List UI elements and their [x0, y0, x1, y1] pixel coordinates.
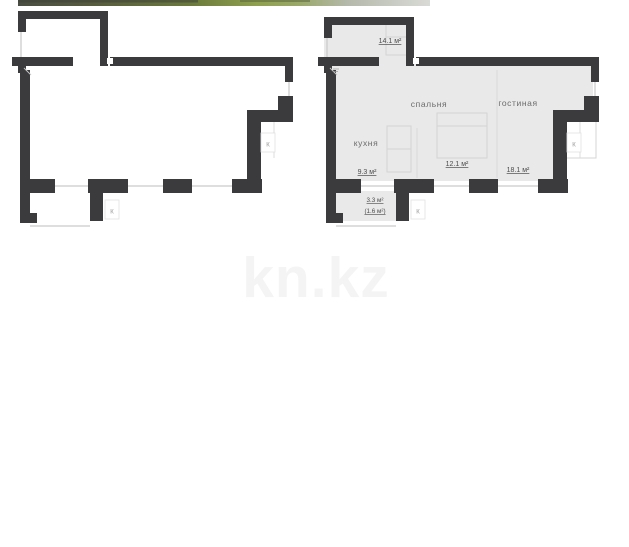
kitchen-area-label: 9.3 м²: [358, 169, 377, 176]
floor-plan-left: К К: [12, 11, 293, 226]
floor-plan-right: 14.1 м² кухня 9.3 м² спальня 12.1 м² гос…: [318, 17, 599, 226]
left-plan-k-marker-right: К: [261, 133, 275, 152]
livingroom-area-label: 18.1 м²: [507, 167, 530, 174]
bathroom-area-label: 3.3 м²: [367, 197, 384, 204]
livingroom-name-label: гостиная: [498, 98, 537, 108]
floor-plan-image: kn.kz: [0, 0, 629, 547]
right-plan-k-marker-right: К: [567, 133, 581, 152]
left-plan-k-marker-bottom: К: [105, 200, 119, 219]
k-marker-label: К: [572, 143, 576, 149]
bedroom-area-label: 12.1 м²: [446, 161, 469, 168]
k-marker-label: К: [266, 143, 270, 149]
bathroom-area-secondary-label: (1.6 м²): [364, 208, 385, 215]
right-plan-k-marker-bottom: К: [411, 200, 425, 219]
floor-plan-svg: kn.kz: [0, 0, 629, 547]
left-plan-walls: [12, 11, 293, 223]
k-marker-label: К: [416, 210, 420, 216]
photo-strip: [18, 0, 430, 6]
right-plan-wall-notch: [413, 58, 419, 64]
k-marker-label: К: [110, 210, 114, 216]
kitchen-name-label: кухня: [354, 138, 379, 148]
kn-kz-watermark: kn.kz: [242, 246, 390, 310]
bedroom-name-label: спальня: [411, 99, 447, 109]
left-plan-wall-notch: [107, 58, 113, 64]
loggia-area-label: 14.1 м²: [379, 38, 402, 45]
